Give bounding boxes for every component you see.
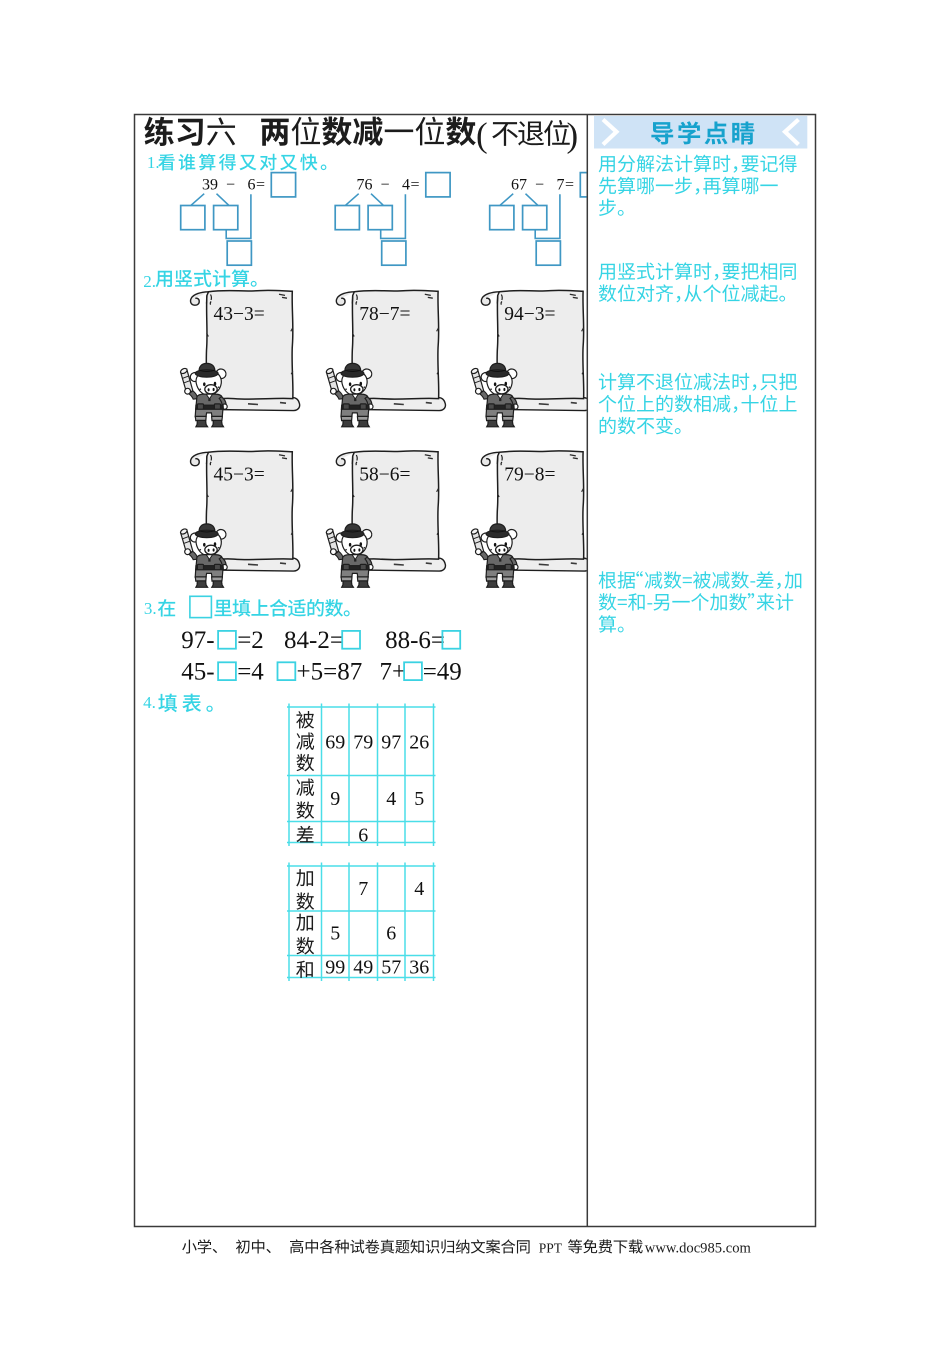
svg-text:97-: 97- [181, 627, 214, 654]
svg-text:5: 5 [330, 923, 340, 945]
svg-text:43−3=: 43−3= [214, 304, 265, 325]
svg-text:=: = [256, 177, 265, 194]
svg-text:−: − [381, 177, 390, 194]
svg-text:1.: 1. [147, 153, 160, 172]
svg-text:2.: 2. [143, 272, 156, 291]
svg-text:7: 7 [358, 878, 368, 900]
svg-text:=4: =4 [237, 658, 264, 685]
svg-text:57: 57 [381, 956, 401, 978]
svg-text:7+: 7+ [380, 658, 407, 685]
svg-text:=2: =2 [237, 627, 264, 654]
svg-text:4.: 4. [143, 693, 156, 712]
svg-text:9: 9 [330, 788, 340, 810]
svg-text:(: ( [476, 116, 488, 155]
svg-text:6: 6 [248, 177, 256, 194]
svg-text:78−7=: 78−7= [359, 304, 410, 325]
svg-text:97: 97 [381, 732, 401, 754]
svg-text:www.doc985.com: www.doc985.com [645, 1240, 752, 1256]
svg-text:69: 69 [325, 732, 345, 754]
svg-text:79−8=: 79−8= [504, 465, 555, 486]
svg-text:7: 7 [557, 177, 565, 194]
svg-text:=49: =49 [423, 658, 462, 685]
svg-text:26: 26 [409, 732, 429, 754]
svg-text:79: 79 [353, 732, 373, 754]
svg-text:76: 76 [357, 177, 373, 194]
svg-text:45-: 45- [181, 658, 214, 685]
svg-text:5: 5 [414, 788, 424, 810]
svg-text:+5=87: +5=87 [297, 658, 363, 685]
svg-text:88-6=: 88-6= [385, 627, 445, 654]
svg-text:99: 99 [325, 956, 345, 978]
svg-text:=: = [411, 177, 420, 194]
svg-text:): ) [567, 116, 579, 155]
svg-text:PPT: PPT [539, 1240, 563, 1255]
svg-text:6: 6 [386, 923, 396, 945]
svg-text:−: − [226, 177, 235, 194]
svg-text:49: 49 [353, 956, 373, 978]
svg-text:39: 39 [202, 177, 218, 194]
svg-text:4: 4 [386, 788, 396, 810]
svg-text:84-2=: 84-2= [284, 627, 344, 654]
svg-text:3.: 3. [144, 599, 157, 618]
svg-text:45−3=: 45−3= [214, 465, 265, 486]
svg-text:4: 4 [402, 177, 410, 194]
svg-text:−: − [535, 177, 544, 194]
svg-text:=: = [565, 177, 574, 194]
svg-text:4: 4 [414, 878, 424, 900]
svg-text:94−3=: 94−3= [504, 304, 555, 325]
svg-text:36: 36 [409, 956, 429, 978]
svg-text:6: 6 [358, 824, 368, 846]
svg-text:58−6=: 58−6= [359, 465, 410, 486]
svg-text:67: 67 [511, 177, 527, 194]
